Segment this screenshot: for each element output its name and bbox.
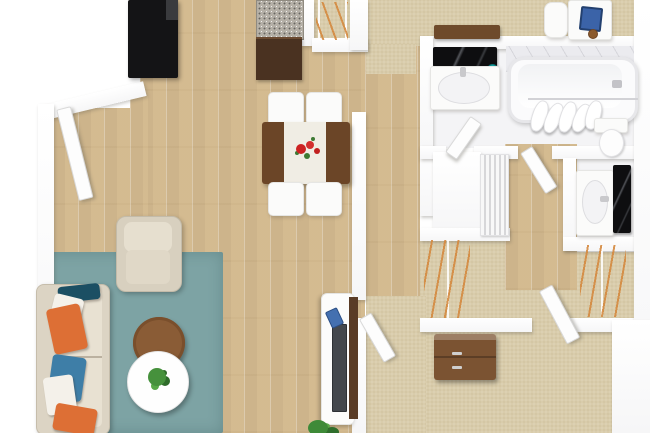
closet-hangers-right <box>580 245 626 317</box>
wall-closet-bottom-left <box>420 318 532 332</box>
refrigerator-top-panel <box>166 0 178 20</box>
kitchen-counter-granite <box>256 0 304 40</box>
floor-hallway-wood <box>365 42 420 300</box>
wall-dining-east <box>352 112 366 300</box>
dining-chair-top-2 <box>306 92 342 126</box>
dining-chair-bottom-2 <box>306 182 342 216</box>
bathroom2-faucet <box>600 196 609 202</box>
wall-bottom-right-block <box>612 320 650 433</box>
closet-hangers-left <box>424 240 470 318</box>
floor-office-entry-carpet <box>366 44 416 74</box>
kitchen-cabinet-face <box>256 37 302 80</box>
shower-curtain-rod <box>528 98 638 100</box>
dresser-handle-1 <box>452 352 462 355</box>
bathtub-faucet <box>612 80 622 88</box>
floor-bedroom-left-carpet <box>366 296 426 433</box>
bathroom1-mirror <box>433 47 497 67</box>
floorplan-canvas <box>0 0 650 433</box>
dining-chair-bottom-1 <box>268 182 304 216</box>
bathroom1-faucet <box>460 67 466 77</box>
wall-closet-right <box>350 0 368 50</box>
toilet-bowl <box>599 129 624 157</box>
floor-plant <box>308 420 328 433</box>
wall-hall-block <box>433 152 481 234</box>
dresser-handle-2 <box>452 366 462 369</box>
bedroom-dresser <box>434 334 496 380</box>
tv <box>332 324 347 412</box>
tv-console-back-panel <box>349 297 358 419</box>
louvered-closet-doors <box>480 154 509 236</box>
office-chair <box>544 2 568 38</box>
armchair-seat <box>126 250 170 284</box>
table-runner <box>284 122 326 184</box>
dining-chair-top-1 <box>268 92 304 126</box>
linen-closet-hangers <box>316 2 348 40</box>
office-sideboard <box>434 25 500 39</box>
bathroom2-sink-basin <box>582 180 608 224</box>
armchair-back-cushion <box>124 222 172 252</box>
flower-centerpiece <box>296 144 306 154</box>
bathroom2-mirror <box>613 165 631 233</box>
coffee-cup <box>588 29 598 39</box>
potted-plant <box>148 368 166 386</box>
